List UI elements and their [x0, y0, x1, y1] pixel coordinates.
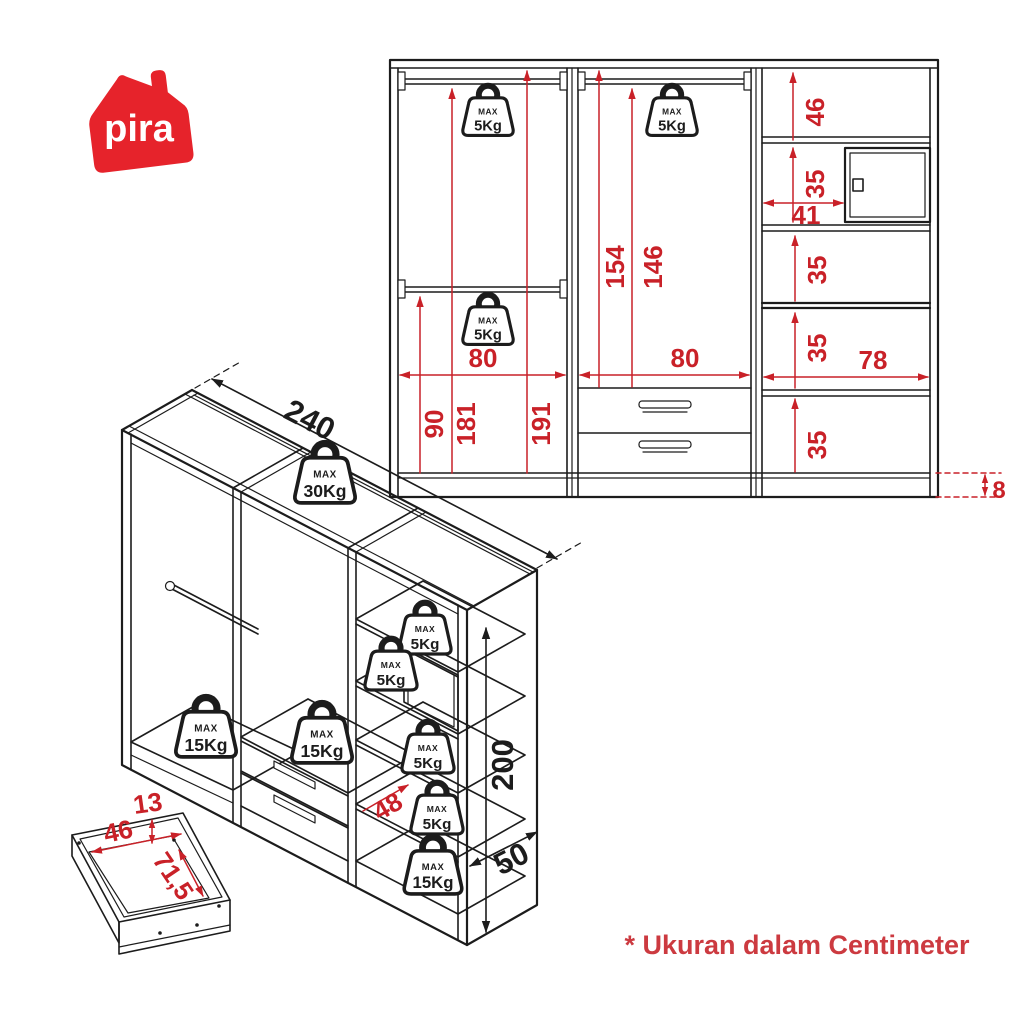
weight-kg-label: 30Kg	[303, 481, 346, 501]
dim-drawer-height: 13	[131, 786, 164, 820]
weight-kg-label: 15Kg	[412, 873, 453, 892]
weight-kg-label: 5Kg	[474, 118, 502, 134]
weight-icon: MAX 5Kg	[647, 86, 697, 136]
dim-shelf-4: 35	[802, 334, 832, 363]
weight-icon: MAX 5Kg	[399, 603, 451, 654]
weight-max-label: MAX	[662, 107, 682, 116]
weight-max-label: MAX	[381, 660, 401, 670]
dim-h-mid-rail: 146	[638, 245, 668, 288]
dim-niche-width: 41	[792, 200, 821, 230]
diagram-canvas: pira	[0, 0, 1024, 1024]
front-view: MAX 5Kg MAX 5Kg MAX 5Kg 80 80 78 90 181 …	[390, 60, 1006, 504]
pira-logo: pira	[84, 67, 195, 173]
dim-shelf-3: 35	[802, 256, 832, 285]
dim-mid-width: 80	[671, 343, 700, 373]
weight-icon: MAX 5Kg	[463, 86, 513, 136]
drawer-dimensions: 13 46 71,5	[92, 786, 203, 905]
drawer-structure	[72, 813, 230, 954]
weight-kg-label: 5Kg	[377, 672, 406, 689]
weight-icon: MAX 5Kg	[463, 295, 513, 345]
dim-iso-shelf-depth: 48	[367, 786, 407, 826]
dim-iso-width: 240	[279, 392, 341, 447]
weight-max-label: MAX	[422, 862, 445, 873]
weight-max-label: MAX	[194, 724, 218, 735]
dim-drawer-depth: 71,5	[147, 847, 200, 906]
weight-max-label: MAX	[313, 470, 337, 481]
dim-shelf-top: 46	[800, 98, 830, 127]
weight-max-label: MAX	[478, 107, 498, 116]
logo-text: pira	[104, 108, 175, 150]
weight-kg-label: 5Kg	[411, 636, 440, 653]
dim-shelf-5: 35	[802, 431, 832, 460]
door-handle-icon	[853, 179, 863, 191]
weight-kg-label: 5Kg	[474, 327, 502, 343]
weight-icon: MAX 15Kg	[176, 698, 236, 757]
dim-drawer-width: 46	[101, 814, 136, 849]
weight-icon: MAX 15Kg	[404, 837, 462, 894]
weight-max-label: MAX	[418, 743, 438, 753]
weight-kg-label: 5Kg	[414, 755, 443, 772]
weight-max-label: MAX	[478, 316, 498, 325]
weight-icon: MAX 15Kg	[292, 704, 352, 763]
weight-icon: MAX 5Kg	[411, 783, 463, 834]
dim-h-top: 191	[526, 402, 556, 445]
dim-h-upper-rail: 181	[451, 402, 481, 445]
weight-max-label: MAX	[310, 730, 334, 741]
dim-iso-depth: 50	[488, 835, 535, 882]
dim-right-width: 78	[859, 345, 888, 375]
units-note: * Ukuran dalam Centimeter	[624, 930, 970, 960]
weight-kg-label: 15Kg	[184, 735, 227, 755]
front-small-door	[845, 148, 930, 222]
dim-shelf-2: 35	[800, 170, 830, 199]
iso-hanging-rail	[166, 582, 259, 635]
dim-plinth: 8	[992, 477, 1005, 504]
weight-kg-label: 5Kg	[423, 816, 452, 833]
dim-left-width: 80	[469, 343, 498, 373]
weight-icon: MAX 5Kg	[402, 722, 454, 773]
dim-h-lower-rail: 90	[419, 410, 449, 439]
weight-max-label: MAX	[415, 624, 435, 634]
front-drawers	[578, 388, 751, 452]
dim-h-mid-top: 154	[600, 245, 630, 289]
weight-kg-label: 15Kg	[300, 741, 343, 761]
drawer-detail: 13 46 71,5	[72, 786, 230, 954]
weight-kg-label: 5Kg	[658, 118, 686, 134]
isometric-view: MAX 30Kg MAX 15Kg MAX 15Kg MAX 5Kg MAX 5…	[122, 361, 584, 945]
dim-iso-height: 200	[485, 739, 520, 791]
weight-max-label: MAX	[427, 804, 447, 814]
